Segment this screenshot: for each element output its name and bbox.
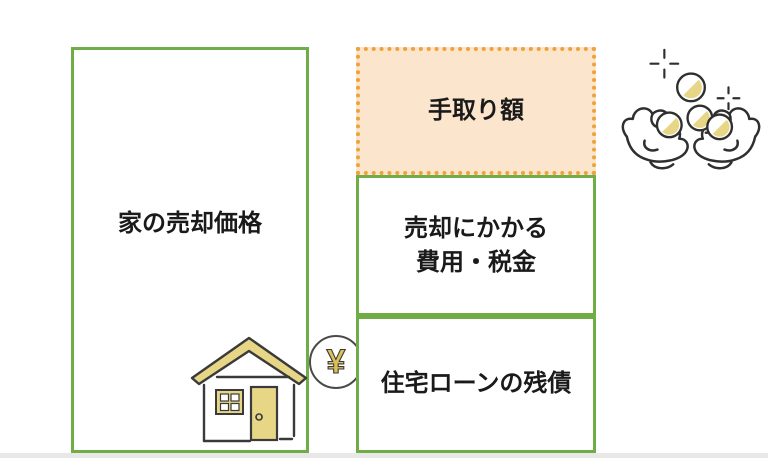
selling-costs-box: 売却にかかる 費用・税金 — [356, 175, 596, 316]
take-home-box: 手取り額 — [356, 47, 596, 175]
loan-balance-box: 住宅ローンの残債 — [356, 316, 596, 453]
take-home-label: 手取り額 — [428, 97, 524, 126]
sale-price-label: 家の売却価格 — [74, 210, 306, 239]
bottom-edge-strip — [0, 453, 768, 458]
coins — [657, 74, 732, 140]
loan-balance-label: 住宅ローンの残債 — [381, 370, 572, 399]
yen-coin-badge: ¥ — [309, 335, 363, 389]
diagram-canvas: 家の売却価格 ¥ 手取り額 — [0, 0, 768, 458]
sale-price-box: 家の売却価格 ¥ — [71, 47, 309, 453]
house-icon — [188, 328, 314, 450]
selling-costs-label: 売却にかかる 費用・税金 — [404, 212, 548, 280]
selling-costs-line1: 売却にかかる — [404, 212, 548, 246]
yen-symbol: ¥ — [327, 345, 346, 379]
selling-costs-line2: 費用・税金 — [404, 246, 548, 280]
hands-receiving-coins-icon — [616, 42, 766, 190]
